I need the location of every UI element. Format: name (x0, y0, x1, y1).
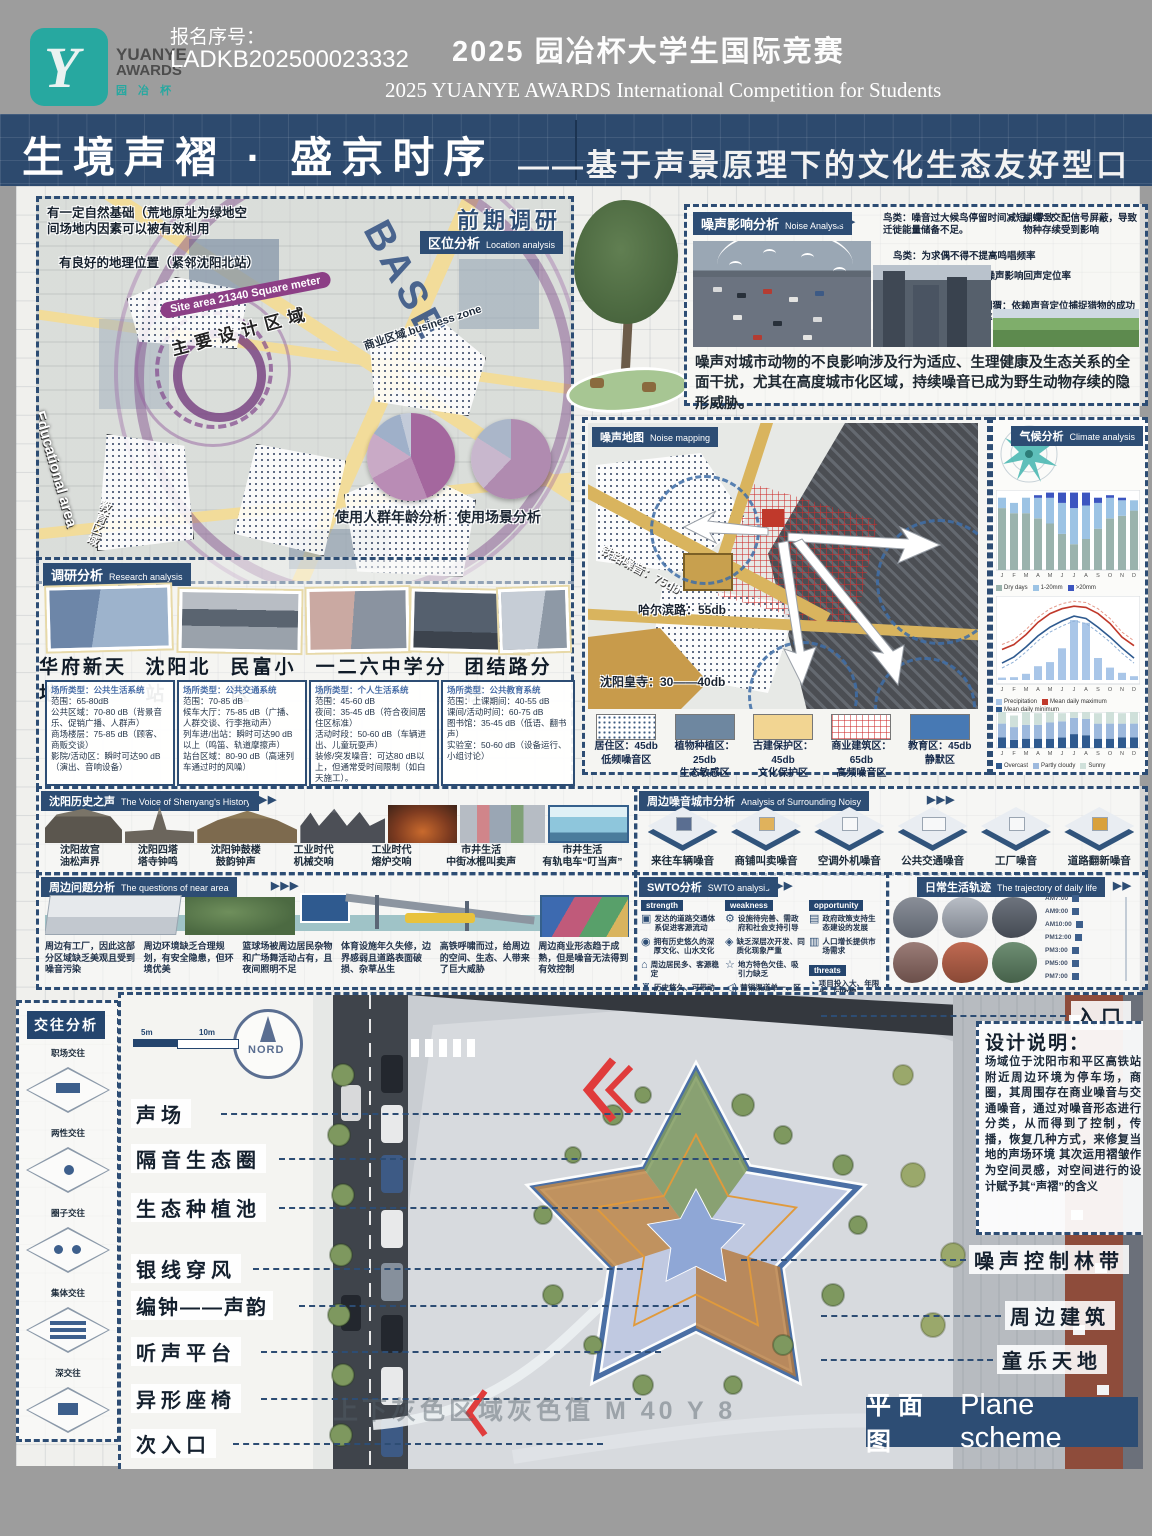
scene-pie-title: 使用场景分析 (457, 507, 541, 527)
svg-text:A: A (1036, 751, 1040, 757)
noise-map-tag: 噪声地图Noise mapping (592, 427, 718, 447)
poster-title: 生境声褶 · 盛京时序 (22, 124, 494, 185)
interaction-couple: 两性交往 (26, 1127, 110, 1197)
chevron-icon: ▶▶▶ (271, 879, 299, 892)
grey-note-watermark: 上下灰色区域灰色值 M 40 Y 8 (333, 1391, 736, 1427)
people-group-photo (992, 942, 1037, 983)
interaction-header: 交往分析 (27, 1011, 105, 1039)
industrial-silhouette (300, 805, 385, 843)
legend-education: 教育区：45db静默区 (901, 714, 979, 766)
policy-icon: ▤ (809, 914, 819, 933)
svg-text:A: A (1084, 751, 1088, 757)
leader-line (261, 1351, 661, 1353)
design-description-box: 设计说明： 场域位于沈阳市和平区高铁站附近周边环境为停车场，商圈，其周围存在商业… (976, 1021, 1143, 1235)
leader-line (821, 1315, 1001, 1317)
timeline-node-icon (1075, 934, 1082, 941)
photo-north-station (178, 589, 301, 653)
timeline-node-icon (1072, 895, 1079, 902)
noise-analysis-panel: 噪声影响分析Noise Analysis ▶▶ 鸟类：噪音过大候鸟停留时间减短，… (684, 204, 1148, 406)
palace-silhouette (45, 805, 122, 843)
tram-silhouette (548, 805, 629, 843)
noise-source-factory (981, 807, 1051, 853)
gear-icon: ⚙ (725, 914, 735, 933)
plan-label-noise-forest: 噪声控制林带 (969, 1245, 1129, 1274)
svg-text:S: S (1096, 751, 1100, 757)
north-compass-icon: NORD (233, 1009, 303, 1079)
svg-text:N: N (1120, 751, 1124, 757)
svg-text:M: M (1048, 573, 1053, 579)
svg-text:J: J (1073, 573, 1076, 579)
strength-chip: strength (641, 900, 683, 911)
leader-line (233, 1443, 603, 1445)
svg-text:N: N (1120, 687, 1124, 693)
population-icon: ▥ (809, 937, 819, 956)
surrounding-captions: 来往车辆噪音 商铺叫卖噪音 空调外机噪音 公共交通噪音 工厂噪音 道路翻新噪音 (641, 853, 1141, 868)
opportunity-chip: opportunity (809, 900, 863, 911)
callout-butterfly: 蝴蝶：交配信号屏蔽，导致物种存续受到影响 (1023, 213, 1139, 237)
svg-text:J: J (1073, 687, 1076, 693)
park-photo (993, 309, 1139, 347)
svg-text:J: J (1061, 687, 1064, 693)
svg-text:A: A (1036, 573, 1040, 579)
research-box-huafu: 场所类型：公共生活系统范围：65-80dB 公共区域：70-80 dB（背景音乐… (45, 680, 175, 786)
people-group-photo (942, 942, 987, 983)
leader-line (279, 1207, 669, 1209)
chevron-icon: ▶▶▶ (927, 793, 955, 806)
scale-segment (177, 1039, 239, 1049)
history-silhouettes (45, 805, 629, 843)
legend-planting: 植物种植区：25db生态敏感区 (665, 714, 743, 766)
leader-line (221, 1113, 681, 1115)
research-analysis-panel: 调研分析Research analysis 华府新天地 沈阳北站 民富小区 一二… (36, 557, 574, 789)
people-photos (893, 897, 1037, 983)
competition-title-en: 2025 YUANYE AWARDS International Competi… (385, 78, 941, 103)
building (913, 285, 939, 347)
area-questions-panel: 周边问题分析The questions of near area ▶▶▶ 周边有… (36, 872, 638, 990)
train-car (405, 913, 475, 923)
svg-text:O: O (1108, 751, 1113, 757)
city-photo (873, 265, 991, 347)
hatch-area (97, 434, 194, 551)
swto-tag: SWTO分析SWTO analysis (639, 877, 778, 897)
photo-tuanjie (498, 587, 570, 653)
residents-icon: ⌂ (641, 960, 648, 979)
plan-label-surrounding-buildings: 周边建筑 (1005, 1301, 1115, 1330)
svg-text:J: J (1001, 751, 1004, 757)
logo-line3: 园 冶 杯 (116, 82, 175, 98)
svg-text:M: M (1024, 687, 1029, 693)
plan-label-soundfield: 声场 (131, 1099, 191, 1128)
svg-text:A: A (1084, 687, 1088, 693)
research-box-minfu: 场所类型：个人生活系统范围：45-60 dB 夜间：35-45 dB（符合夜间居… (309, 680, 439, 786)
svg-text:J: J (1061, 751, 1064, 757)
climate-tag: 气候分析Climate analysis (1011, 426, 1143, 446)
leader-line (741, 1259, 966, 1261)
questions-photo-band (45, 893, 629, 937)
highway-photo (693, 241, 871, 347)
svg-text:O: O (1108, 687, 1113, 693)
swto-strength-column: strength ▣发达的道路交通体系促进客源流动 ◉拥有历史悠久的深厚文化、山… (641, 895, 721, 1006)
svg-text:A: A (1036, 687, 1040, 693)
culture-icon: ◉ (641, 937, 651, 956)
svg-text:D: D (1132, 573, 1136, 579)
svg-text:M: M (1024, 573, 1029, 579)
factory-photo (45, 895, 182, 935)
registration-label: 报名序号： (170, 22, 265, 49)
leader-line (821, 1015, 1066, 1017)
plan-label-chime: 编钟——声韵 (131, 1291, 273, 1320)
location-analysis-panel: Site area 21340 Square meter 主要设计区域 BASE… (36, 196, 574, 584)
history-voice-panel: 沈阳历史之声The Voice of Shenyang's History ▶▶… (36, 786, 638, 876)
age-pie-chart (367, 413, 455, 501)
chevron-icon: ▶▶▶ (765, 879, 793, 892)
noise-impact-summary: 噪声对城市动物的不良影响涉及行为适应、生理健康及生态关系的全面干扰，尤其在高度城… (695, 353, 1139, 414)
noise-mapping-panel: 铁路噪音：75db 哈尔滨路：55db 沈阳皇寺：30——40db 噪声地图No… (582, 417, 990, 775)
furnace-silhouette (388, 805, 457, 843)
road-network-icon: ▣ (641, 914, 651, 933)
plan-label-kids-area: 童乐天地 (997, 1345, 1107, 1374)
interaction-group: 集体交往 (26, 1287, 110, 1357)
temple-label: 沈阳皇寺：30——40db (600, 673, 725, 690)
site-note-2: 有良好的地理位置（紧邻沈阳北站） (59, 255, 259, 271)
swto-panel: SWTO分析SWTO analysis ▶▶▶ strength ▣发达的道路交… (634, 872, 890, 990)
leader-line (279, 1158, 749, 1160)
svg-text:J: J (1001, 687, 1004, 693)
svg-text:O: O (1108, 573, 1113, 579)
design-note-title: 设计说明： (985, 1028, 1141, 1055)
svg-text:S: S (1096, 573, 1100, 579)
island-hut (642, 382, 656, 392)
interaction-analysis-panel: 交往分析 职场交往 两性交往 圈子交往 集体交往 深交往 (16, 1000, 120, 1442)
trees-photo (185, 897, 295, 935)
chevron-icon: ▶▶ (837, 215, 856, 228)
noise-source-transit (898, 807, 968, 853)
temperature-chart: JFMAMJJASONDPrecipitationMean daily maxi… (996, 596, 1140, 708)
bridge-photo (345, 895, 535, 935)
people-group-photo (893, 897, 938, 938)
scale-10m: 10m (199, 1028, 215, 1037)
daily-tag: 日常生活轨迹The trajectory of daily life (917, 877, 1105, 897)
plan-label-shaped-seat: 异形座椅 (131, 1384, 241, 1413)
research-tag: 调研分析Research analysis (43, 563, 191, 586)
svg-text:F: F (1012, 573, 1016, 579)
legend-heritage: 古建保护区：45db文化保护区 (744, 714, 822, 766)
site-note-1: 有一定自然基础（荒地原址为绿地空间场地内因素可以被有效利用 (47, 205, 252, 238)
leader-line (253, 1268, 643, 1270)
island-hut (590, 378, 604, 388)
compass-needle (260, 1016, 276, 1042)
yuanye-logo-icon: Y (30, 28, 108, 106)
harbin-road-label: 哈尔滨路：55db (638, 601, 726, 618)
people-group-photo (992, 897, 1037, 938)
people-group-photo (893, 942, 938, 983)
scale-bar: 5m 10m (133, 1035, 243, 1051)
noise-map-legend: 居住区：45db低频噪音区 植物种植区：25db生态敏感区 古建保护区：45db… (587, 714, 979, 766)
location-analysis-tag: 区位分析Location analysis (420, 231, 563, 254)
svg-text:S: S (1096, 687, 1100, 693)
interaction-circle: 圈子交往 (26, 1207, 110, 1277)
competition-poster: Y YUANYE AWARDS 园 冶 杯 报名序号： LADKB2025000… (0, 0, 1152, 1536)
noise-source-ac (814, 807, 884, 853)
photo-minfu (306, 587, 409, 653)
history-captions: 沈阳故宫油松声界 沈阳四塔塔寺钟鸣 沈阳钟鼓楼鼓韵钟声 工业时代机械交响 工业时… (41, 845, 633, 869)
plan-label-eco-ring: 隔音生态圈 (131, 1144, 266, 1173)
scale-5m: 5m (141, 1028, 153, 1037)
svg-text:J: J (1073, 751, 1076, 757)
billboard-photo (540, 895, 629, 937)
svg-text:M: M (1048, 687, 1053, 693)
svg-text:N: N (1120, 573, 1124, 579)
daily-trajectory-panel: 日常生活轨迹The trajectory of daily life ▶▶ AM… (886, 872, 1148, 990)
scale-segment (133, 1039, 177, 1047)
leader-line (821, 1359, 993, 1361)
tree-illustration (566, 200, 688, 408)
svg-text:M: M (1024, 751, 1029, 757)
plan-label-listening-platform: 听声平台 (131, 1337, 241, 1366)
plane-scheme-cn: 平 面 图 (866, 1386, 952, 1458)
leader-line (299, 1305, 689, 1307)
svg-text:F: F (1012, 751, 1016, 757)
threats-chip: threats (809, 965, 846, 976)
interaction-deep: 深交往 (26, 1367, 110, 1437)
svg-text:D: D (1132, 751, 1136, 757)
timeline-node-icon (1072, 947, 1079, 954)
tree-canopy (574, 200, 678, 324)
noise-analysis-tag: 噪声影响分析Noise Analysis (693, 212, 852, 235)
svg-text:M: M (1048, 751, 1053, 757)
people-group-photo (942, 897, 987, 938)
registration-number: LADKB202500023332 (170, 46, 409, 74)
noise-source-traffic (648, 807, 718, 853)
building (947, 277, 967, 347)
weakness-chip: weakness (725, 900, 773, 911)
road-sign (300, 893, 350, 923)
questions-captions: 周边有工厂，因此这部分区域缺乏美观且受到噪音污染 周边环境缺乏合理规划，有安全隐… (45, 941, 629, 976)
callout-birds-2: 鸟类：为求偶不得不提高鸣唱频率 (893, 251, 1063, 263)
street-life-silhouette (460, 805, 545, 843)
surrounding-items (641, 807, 1141, 853)
swto-weakness-column: weakness ⚙设施待完善、需政府和社会支持引导 ◈缺乏深层次开发、同质化现… (725, 895, 805, 1006)
svg-text:J: J (1001, 573, 1004, 579)
photo-huafu (46, 584, 172, 651)
master-plan-panel: 声场 隔音生态圈 生态种植池 银线穿风 编钟——声韵 听声平台 异形座椅 次入口… (118, 992, 1143, 1469)
plan-label-secondary-entry: 次入口 (131, 1429, 216, 1458)
plane-scheme-banner: 平 面 图 Plane scheme (866, 1397, 1138, 1447)
drum-tower-silhouette (197, 805, 297, 843)
timeline-node-icon (1076, 921, 1083, 928)
educational-area-label: Educational area (36, 409, 80, 529)
plane-scheme-en: Plane scheme (960, 1389, 1138, 1455)
compass-label: NORD (248, 1044, 284, 1056)
noise-source-shop (731, 807, 801, 853)
research-box-station: 场所类型：公共交通系统范围：70-85 dB 候车大厅：75-85 dB（广播、… (177, 680, 307, 786)
cloud-cover-chart: JFMAMJJASONDOvercastPartly cloudySunny (996, 712, 1140, 768)
timeline-node-icon (1072, 908, 1079, 915)
competition-title-cn: 2025 园冶杯大学生国际竞赛 (452, 28, 845, 70)
timeline-axis (1125, 897, 1127, 981)
daily-timeline: AM7:00 AM9:00 AM10:00 PM12:00 PM3:00 PM5… (1045, 895, 1083, 986)
development-icon: ◈ (725, 937, 733, 956)
timeline-node-icon (1072, 973, 1079, 980)
interaction-workplace: 职场交往 (26, 1047, 110, 1117)
building (883, 271, 905, 347)
design-note-body: 场域位于沈阳市和平区高铁站附近周边环境为停车场，商圈，其周围存在商业噪音与交通噪… (985, 1055, 1141, 1195)
noise-map-canvas: 铁路噪音：75db 哈尔滨路：55db 沈阳皇寺：30——40db 噪声地图No… (588, 423, 978, 709)
svg-text:A: A (1084, 573, 1088, 579)
pagoda-silhouette (125, 805, 194, 843)
bridge-pylon (375, 895, 379, 929)
chevron-icon: ▶▶ (1113, 879, 1132, 892)
main-title-banner: 生境声褶 · 盛京时序 ——基于声景原理下的文化生态友好型口袋公园 (0, 114, 1152, 186)
precipitation-days-chart: JFMAMJJASONDDry days1-20mm>20mm (996, 490, 1140, 590)
age-pie-title: 使用人群年龄分析 (335, 507, 447, 527)
svg-text:F: F (1012, 687, 1016, 693)
climate-analysis-panel: 气候分析Climate analysis JFMAMJJASONDDry day… (990, 417, 1148, 775)
svg-text:D: D (1132, 687, 1136, 693)
svg-text:J: J (1061, 573, 1064, 579)
star-icon: ☆ (725, 960, 735, 979)
scene-pie-chart (471, 419, 551, 499)
plan-label-planting-pool: 生态种植池 (131, 1193, 266, 1222)
plan-label-silver-wind: 银线穿风 (131, 1254, 241, 1283)
legend-residential: 居住区：45db低频噪音区 (587, 714, 665, 766)
surrounding-noise-panel: 周边噪音城市分析Analysis of Surrounding Noisy ▶▶… (634, 786, 1148, 876)
timeline-node-icon (1072, 960, 1079, 967)
legend-commercial: 商业建筑区：65db高频噪音区 (822, 714, 900, 766)
research-box-schools: 场所类型：公共教育系统范围：上课期间：40-55 dB 课间/活动时间：60-7… (441, 680, 575, 786)
noise-source-roadwork (1064, 807, 1134, 853)
